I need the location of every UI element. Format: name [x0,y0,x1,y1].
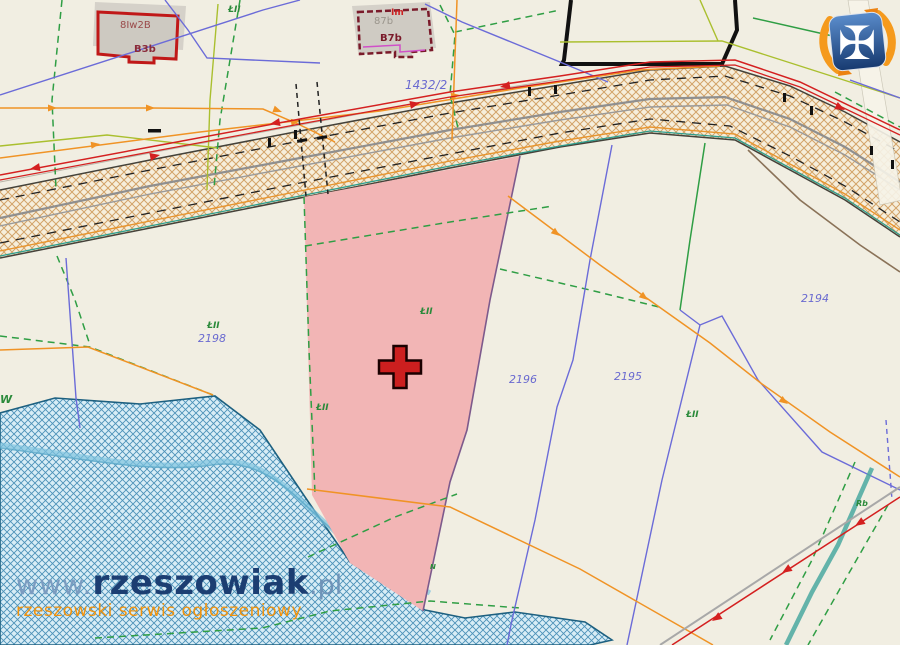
map-canvas: 1432/2 2198 2196 2195 2194 ŁII ŁII ŁII Ł… [0,0,900,645]
pole-symbol [268,138,271,147]
pole-symbol [870,146,873,155]
building-label: 8Iw2B [120,20,151,31]
land-use-mark: ŁII [315,403,329,413]
parcel-label: 2194 [801,292,829,305]
building-label: 87b [374,16,393,27]
land-use-mark: ŁII [419,307,433,317]
pole-symbol [810,106,813,115]
pole-symbol [891,160,894,169]
pole-symbol [554,85,557,94]
land-use-mark: Rb [856,499,868,508]
land-use-mark: ŁII [685,410,699,420]
parcel-label: 2196 [509,373,537,386]
pole-symbol [148,129,161,133]
pole-symbol [294,130,297,139]
cadastral-map: 1432/2 2198 2196 2195 2194 ŁII ŁII ŁII Ł… [0,0,900,645]
land-use-mark: ŁII [206,321,220,331]
watermark: www.rzeszowiak.pl rzeszowski serwis ogło… [16,566,342,621]
parcel-label: 1432/2 [405,78,447,92]
building-label: B3b [134,44,156,55]
watermark-tagline: rzeszowski serwis ogłoszeniowy [16,603,342,621]
maltese-cross-icon: ✠ [838,16,877,70]
rzeszow-logo: ✠ [814,0,900,86]
pole-symbol [528,87,531,96]
land-use-mark: ŁII [227,5,241,15]
watermark-brand: rzeszowiak [92,563,309,603]
watermark-tld: .pl [309,570,342,601]
building-label: B7b [380,33,402,44]
parcel-label: 2198 [198,332,226,345]
land-use-mark: N [430,563,436,571]
watermark-www: www. [16,570,92,601]
parcel-label: 2195 [614,370,642,383]
land-use-mark: W [0,393,13,406]
watermark-line1: www.rzeszowiak.pl [16,566,342,602]
pole-symbol [783,93,786,102]
